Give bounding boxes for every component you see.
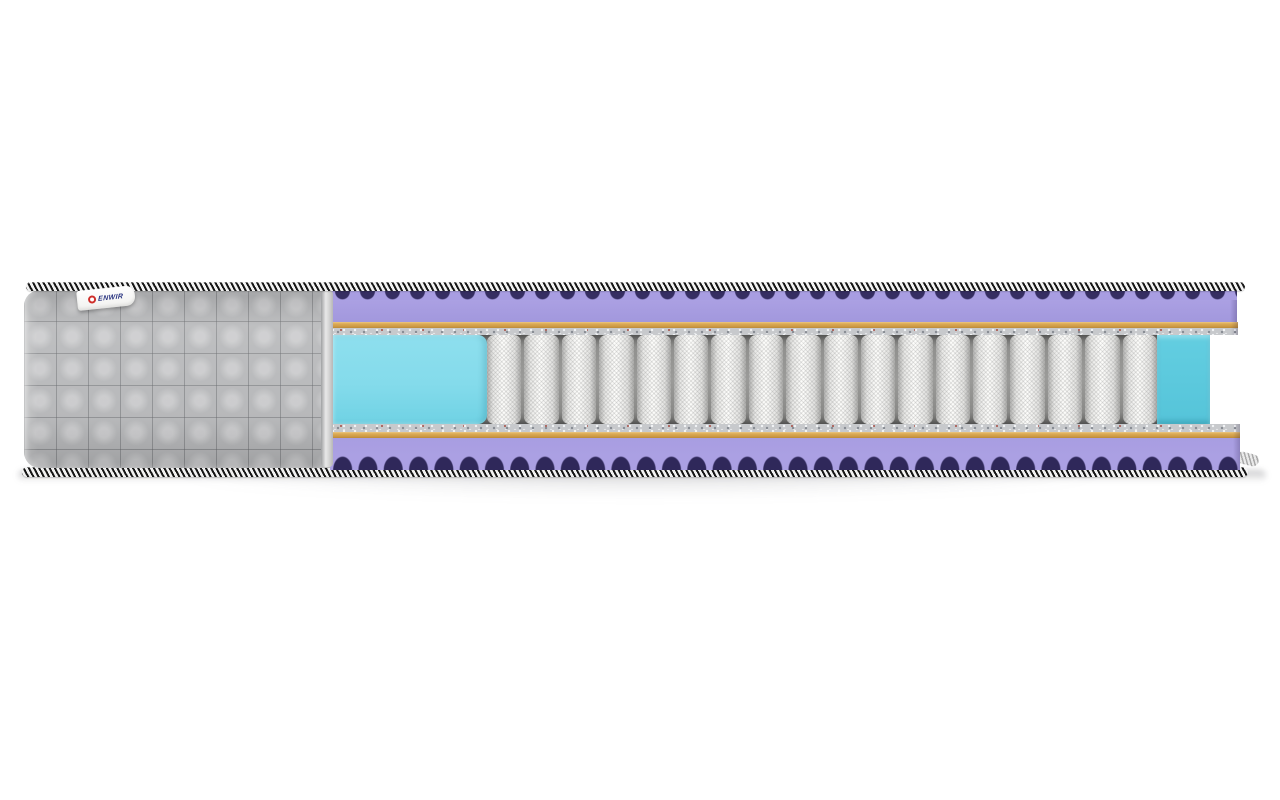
spring-core (330, 335, 1210, 424)
quilted-cover (24, 290, 330, 468)
foam-top-body (330, 300, 1237, 322)
felt-top (330, 328, 1238, 335)
spring-coil (599, 335, 633, 424)
floor-shadow-soft (6, 474, 1274, 504)
spring-coil (1048, 335, 1082, 424)
spring-coil (973, 335, 1007, 424)
spring-coil (562, 335, 596, 424)
cover-cut-edge (321, 290, 333, 467)
foam-bottom-body (330, 438, 1240, 456)
spring-coil (637, 335, 671, 424)
spring-coil (1085, 335, 1119, 424)
spring-coil (898, 335, 932, 424)
brand-tag-text: ENWIR (98, 293, 123, 303)
felt-bottom (330, 424, 1240, 432)
spring-coil (1123, 335, 1157, 424)
spring-coil (487, 335, 521, 424)
spring-coil (824, 335, 858, 424)
pocket-springs (487, 335, 1157, 424)
spring-coil (749, 335, 783, 424)
spring-coil (861, 335, 895, 424)
spring-coil (936, 335, 970, 424)
edge-foam-left (330, 335, 487, 424)
spring-coil (1010, 335, 1044, 424)
edge-foam-right (1157, 335, 1210, 424)
border-tape-top (26, 282, 1245, 291)
brand-ring-logo-icon (88, 295, 97, 304)
mattress-product-render: ENWIR (0, 0, 1280, 800)
spring-coil (674, 335, 708, 424)
spring-coil (711, 335, 745, 424)
wave-foam-bottom (330, 455, 1240, 470)
spring-coil (786, 335, 820, 424)
spring-coil (524, 335, 558, 424)
